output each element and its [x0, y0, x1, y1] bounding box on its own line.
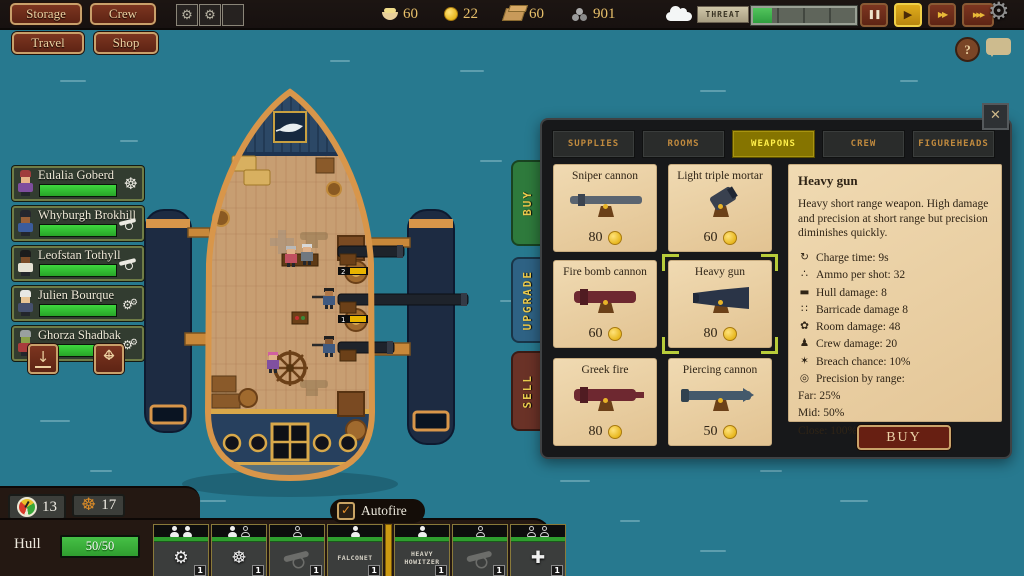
slot-label: HEAVY HOWITZER — [395, 550, 449, 567]
room-damage-icon: ✿ — [798, 319, 811, 336]
side-tab-sell[interactable]: Sell — [511, 351, 542, 431]
avatar-hat — [20, 330, 31, 337]
water-streak — [200, 500, 226, 502]
shop-button[interactable]: Shop — [94, 32, 158, 54]
food-resource: 60 — [382, 6, 418, 23]
resource-counters: 602260901 — [382, 0, 616, 28]
avatar-hat — [20, 290, 31, 297]
item-image-mortar — [677, 185, 763, 219]
crew-member-card[interactable]: Julien Bourque⚙⚙ — [12, 286, 144, 321]
selection-bracket — [761, 254, 778, 271]
crew-filled-icon — [170, 526, 179, 537]
avatar-body — [18, 303, 33, 312]
item-name: Fire bomb cannon — [554, 266, 656, 278]
wood-resource: 60 — [504, 6, 544, 23]
crew-empty-icon — [476, 526, 485, 537]
slot-crew-strip — [154, 525, 208, 537]
price-value: 80 — [589, 230, 603, 246]
role-gears-icon: ⚙⚙ — [122, 294, 138, 313]
stat-row: Far: 25% — [798, 388, 992, 405]
help-button[interactable]: ? — [955, 37, 980, 62]
crew-member-card[interactable]: Leofstan Tothyll — [12, 246, 144, 281]
selection-bracket — [761, 337, 778, 354]
slot-count: 1 — [252, 565, 264, 576]
gear-icon: ⚙ — [130, 338, 138, 348]
avatar-hat — [20, 170, 31, 177]
item-price: 80 — [554, 230, 656, 246]
play-button[interactable]: ▶ — [894, 3, 922, 27]
ghost-cannon-icon — [282, 548, 312, 569]
water-streak — [700, 90, 726, 92]
barricade-damage-icon: ∷ — [798, 302, 811, 319]
slot-crew-strip — [270, 525, 324, 537]
gold-icon — [608, 231, 622, 245]
stat-text: Charge time: 9s — [816, 250, 889, 267]
room-slot-4[interactable]: FALCONET1 — [327, 524, 383, 576]
item-stat-list: ↻Charge time: 9s∴Ammo per shot: 32▬Hull … — [798, 250, 992, 440]
crew-damage-icon: ♟ — [798, 336, 811, 353]
wood-icon — [502, 8, 526, 21]
price-value: 60 — [589, 326, 603, 342]
settings-gear-icon[interactable]: ⚙ — [988, 0, 1010, 25]
ammo-count: 1 — [341, 316, 345, 324]
breach-chance-icon: ✶ — [798, 354, 811, 371]
health-bar-fill — [40, 225, 116, 236]
hull-value: 50/50 — [62, 537, 138, 556]
shop-item-greek-fire[interactable]: Greek fire80 — [553, 358, 657, 446]
crew-roster: Eulalia Goberd☸Whyburgh BrokhillLeofstan… — [12, 166, 142, 366]
water-streak — [90, 470, 112, 472]
stat-text: Hull damage: 8 — [816, 285, 887, 302]
selection-bracket — [662, 254, 679, 271]
water-streak — [60, 80, 86, 82]
move-vertical-icon: ↕ — [96, 348, 122, 364]
stat-row: ∷Barricade damage 8 — [798, 302, 992, 319]
hull-bar: 50/50 — [60, 535, 140, 558]
item-detail-pane: Heavy gun Heavy short range weapon. High… — [788, 164, 1002, 422]
price-value: 60 — [704, 230, 718, 246]
storage-button[interactable]: Storage — [10, 3, 82, 25]
item-price: 80 — [554, 424, 656, 440]
crew-button[interactable]: Crew — [90, 3, 156, 25]
avatar-legs — [21, 312, 30, 316]
cannon-barrel — [693, 287, 749, 309]
item-price: 60 — [554, 326, 656, 342]
ship-view: 21 — [130, 78, 480, 498]
cannon-barrel — [570, 196, 642, 204]
crew-empty-icon — [241, 526, 250, 537]
gold-icon — [723, 425, 737, 439]
gold-resource: 22 — [444, 6, 478, 23]
move-crew-button[interactable]: ↔ ↕ — [94, 344, 124, 374]
ammo-icon: ∴ — [798, 267, 811, 284]
gold-icon — [723, 327, 737, 341]
water-streak — [330, 60, 350, 62]
crew-name: Eulalia Goberd — [38, 168, 114, 183]
stat-text: Breach chance: 10% — [816, 354, 911, 371]
auto-assign-toggle-1[interactable]: ⚙ — [176, 4, 198, 26]
crew-empty-icon — [540, 526, 549, 537]
helm-badge: ☸ 17 — [72, 494, 125, 517]
playback-controls: ❚❚▶▶▶▶▶▶ — [860, 3, 994, 27]
mount-pin — [718, 204, 723, 209]
pontoon-left — [145, 210, 191, 432]
charge-time-icon: ↻ — [798, 250, 811, 267]
slot-crew-strip — [395, 525, 449, 537]
resource-value: 901 — [593, 6, 616, 23]
cannon-icon — [118, 216, 138, 230]
water-streak — [480, 160, 502, 162]
item-image-greek — [562, 379, 648, 413]
item-image-firebomb — [562, 281, 648, 315]
water-streak — [840, 500, 868, 502]
chat-bubble-icon[interactable] — [986, 38, 1011, 55]
gold-icon — [608, 327, 622, 341]
mount-pin — [718, 300, 723, 305]
room-slot-6[interactable]: 1 — [452, 524, 508, 576]
stat-row: ✿Room damage: 48 — [798, 319, 992, 336]
fast-forward-button[interactable]: ▶▶ — [928, 3, 956, 27]
side-tab-buy[interactable]: Buy — [511, 160, 542, 246]
cannonball-resource: 901 — [570, 6, 616, 23]
mount-pin — [718, 398, 723, 403]
autofire-label: Autofire — [361, 503, 407, 519]
price-value: 80 — [704, 326, 718, 342]
precision-icon: ◎ — [798, 371, 811, 388]
gold-icon — [723, 231, 737, 245]
avatar-legs — [21, 192, 30, 196]
item-name: Greek fire — [554, 364, 656, 376]
slot-count: 1 — [368, 565, 380, 576]
slot-count: 1 — [194, 565, 206, 576]
stat-row: ♟Crew damage: 20 — [798, 336, 992, 353]
pontoon-right — [408, 210, 454, 444]
stat-text: Precision by range: — [816, 371, 905, 388]
room-slot-3[interactable]: 1 — [269, 524, 325, 576]
travel-button[interactable]: Travel — [12, 32, 84, 54]
speed-value: 13 — [42, 499, 57, 516]
item-name: Sniper cannon — [554, 170, 656, 182]
item-name: Light triple mortar — [669, 170, 771, 182]
crew-member-card[interactable]: Whyburgh Brokhill — [12, 206, 144, 241]
stat-row: ▬Hull damage: 8 — [798, 285, 992, 302]
slot-crew-strip — [511, 525, 565, 537]
crew-empty-icon — [293, 526, 302, 537]
room-slot-7[interactable]: ✚1 — [510, 524, 566, 576]
helm-wheel-icon: ☸ — [231, 548, 246, 568]
stat-text: Close: 100% — [798, 423, 857, 440]
mount-pin — [603, 300, 608, 305]
threat-meter — [751, 6, 857, 25]
shop-panel: SuppliesRoomsWeaponsCrewFigureHeads Snip… — [540, 118, 1012, 459]
resource-value: 60 — [529, 6, 544, 23]
helm-value: 17 — [101, 497, 116, 514]
water-streak — [560, 480, 590, 482]
slot-crew-strip — [212, 525, 266, 537]
crew-filled-icon — [183, 526, 192, 537]
tab-weapons[interactable]: Weapons — [732, 130, 815, 158]
health-bar — [39, 184, 117, 197]
item-detail-description: Heavy short range weapon. High damage an… — [798, 197, 992, 241]
stat-row: ↻Charge time: 9s — [798, 250, 992, 267]
stat-text: Mid: 50% — [798, 405, 844, 422]
autofire-checkbox[interactable]: ✓ — [337, 502, 355, 520]
role-cannon-icon — [118, 255, 138, 274]
stat-row: ✶Breach chance: 10% — [798, 354, 992, 371]
health-bar — [39, 264, 117, 277]
food-icon — [382, 12, 398, 20]
stat-row: ◎Precision by range: — [798, 371, 992, 388]
role-cannon-icon — [118, 215, 138, 234]
stat-text: Barricade damage 8 — [816, 302, 908, 319]
item-name: Heavy gun — [669, 266, 771, 278]
hull-label: Hull — [14, 536, 41, 553]
selection-bracket — [662, 337, 679, 354]
shop-tab-bar: SuppliesRoomsWeaponsCrewFigureHeads — [552, 130, 995, 158]
pause-button[interactable]: ❚❚ — [860, 3, 888, 27]
item-image-piercing — [677, 379, 763, 413]
shop-item-fire-bomb-cannon[interactable]: Fire bomb cannon60 — [553, 260, 657, 348]
slot-count: 1 — [551, 565, 563, 576]
health-bar-fill — [40, 305, 116, 316]
avatar-hat — [20, 250, 31, 257]
tab-crew[interactable]: Crew — [822, 130, 905, 158]
cannon-icon — [118, 256, 138, 270]
crew-empty-icon — [527, 526, 536, 537]
avatar-body — [18, 223, 33, 232]
crew-name: Ghorza Shadbak — [38, 328, 121, 343]
supply-sign — [292, 312, 308, 324]
speed-gauge-icon — [17, 497, 37, 517]
side-tab-label: Upgrade — [521, 270, 534, 330]
side-tab-upgrade[interactable]: Upgrade — [511, 257, 542, 343]
buy-button[interactable]: BUY — [857, 425, 951, 450]
health-bar — [39, 304, 117, 317]
ammo-count: 2 — [341, 268, 345, 276]
water-streak — [760, 470, 782, 472]
avatar-legs — [21, 232, 30, 236]
stat-row: Mid: 50% — [798, 405, 992, 422]
hull-damage-icon: ▬ — [798, 285, 811, 302]
item-detail-title: Heavy gun — [798, 173, 992, 189]
stat-text: Room damage: 48 — [816, 319, 900, 336]
avatar — [17, 170, 34, 196]
weather-cloud-icon — [666, 12, 692, 21]
gears-icon: ⚙ — [173, 548, 188, 568]
item-price: 60 — [669, 230, 771, 246]
price-value: 50 — [704, 424, 718, 440]
stat-text: Far: 25% — [798, 388, 840, 405]
tab-supplies[interactable]: Supplies — [552, 130, 635, 158]
avatar — [17, 250, 34, 276]
threat-fill — [753, 8, 772, 23]
cannonball-icon — [572, 14, 579, 21]
avatar-body — [18, 183, 33, 192]
slot-separator — [385, 524, 392, 576]
swordfish-emblem — [274, 112, 306, 142]
health-bar-fill — [40, 265, 116, 276]
slot-crew-strip — [328, 525, 382, 537]
water-streak — [700, 550, 726, 552]
side-tab-label: Buy — [521, 190, 534, 216]
water-streak — [40, 420, 70, 422]
slot-crew-strip — [453, 525, 507, 537]
slot-count: 1 — [493, 565, 505, 576]
item-price: 50 — [669, 424, 771, 440]
gold-icon — [444, 7, 458, 21]
avatar — [17, 210, 34, 236]
gear-icon: ⚙ — [130, 298, 138, 308]
ghost-cannon-icon — [465, 548, 495, 569]
recall-crew-button[interactable]: ↓ — [28, 344, 58, 374]
shop-item-piercing-cannon[interactable]: Piercing cannon50 — [668, 358, 772, 446]
crew-member-card[interactable]: Eulalia Goberd☸ — [12, 166, 144, 201]
gold-icon — [608, 425, 622, 439]
mount-pin — [603, 204, 608, 209]
shop-item-heavy-gun[interactable]: Heavy gun80 — [668, 260, 772, 348]
resource-value: 22 — [463, 6, 478, 23]
avatar — [17, 290, 34, 316]
role-helm-icon: ☸ — [124, 176, 138, 192]
medic-cross-icon: ✚ — [531, 548, 545, 568]
crew-filled-icon — [228, 526, 237, 537]
auto-assign-toggle-2[interactable]: ⚙ — [199, 4, 221, 26]
mount-pin — [603, 398, 608, 403]
crew-name: Leofstan Tothyll — [38, 248, 121, 263]
item-image-heavy — [677, 281, 763, 315]
room-slot-2[interactable]: ☸1 — [211, 524, 267, 576]
item-name: Piercing cannon — [669, 364, 771, 376]
tab-figureheads[interactable]: FigureHeads — [912, 130, 995, 158]
bottom-bar: Hull 50/50 ⚙1☸11FALCONET1HEAVY HOWITZER1… — [0, 518, 550, 576]
game-screen: 21 Storage Crew ⚙ ⚙ 602260901 THREAT ❚❚▶… — [0, 0, 1024, 576]
slot-label: FALCONET — [337, 554, 372, 562]
water-streak — [900, 80, 918, 82]
tab-rooms[interactable]: Rooms — [642, 130, 725, 158]
threat-label: THREAT — [697, 6, 749, 23]
room-slot-1[interactable]: ⚙1 — [153, 524, 209, 576]
slot-count: 1 — [435, 565, 447, 576]
close-shop-icon[interactable]: ✕ — [982, 103, 1009, 130]
avatar-hat — [20, 210, 31, 217]
room-slot-bar: ⚙1☸11FALCONET1HEAVY HOWITZER11✚1 — [153, 524, 566, 576]
crew-filled-icon — [351, 526, 360, 537]
crew-filled-icon — [418, 526, 427, 537]
role-gears-icon: ⚙⚙ — [122, 334, 138, 353]
health-bar — [39, 224, 117, 237]
item-price: 80 — [669, 326, 771, 342]
avatar-body — [18, 263, 33, 272]
stat-text: Crew damage: 20 — [816, 336, 897, 353]
crew-name: Julien Bourque — [38, 288, 114, 303]
water-streak — [460, 70, 484, 72]
item-image-sniper — [562, 185, 648, 219]
room-slot-5[interactable]: HEAVY HOWITZER1 — [394, 524, 450, 576]
resource-value: 60 — [403, 6, 418, 23]
shop-item-light-triple-mortar[interactable]: Light triple mortar60 — [668, 164, 772, 252]
health-bar-fill — [40, 185, 116, 196]
empty-toggle[interactable] — [222, 4, 244, 26]
top-bar: Storage Crew ⚙ ⚙ 602260901 THREAT ❚❚▶▶▶▶… — [0, 0, 1024, 30]
side-tab-label: Sell — [521, 374, 534, 409]
stat-row: ∴Ammo per shot: 32 — [798, 267, 992, 284]
slot-count: 1 — [310, 565, 322, 576]
avatar-legs — [21, 272, 30, 276]
helm-wheel-icon: ☸ — [81, 497, 96, 514]
price-value: 80 — [589, 424, 603, 440]
autofire-toggle[interactable]: ✓ Autofire — [330, 499, 425, 523]
stat-text: Ammo per shot: 32 — [816, 267, 905, 284]
water-streak — [620, 520, 640, 522]
shop-item-sniper-cannon[interactable]: Sniper cannon80 — [553, 164, 657, 252]
speed-badge: 13 — [8, 494, 66, 520]
